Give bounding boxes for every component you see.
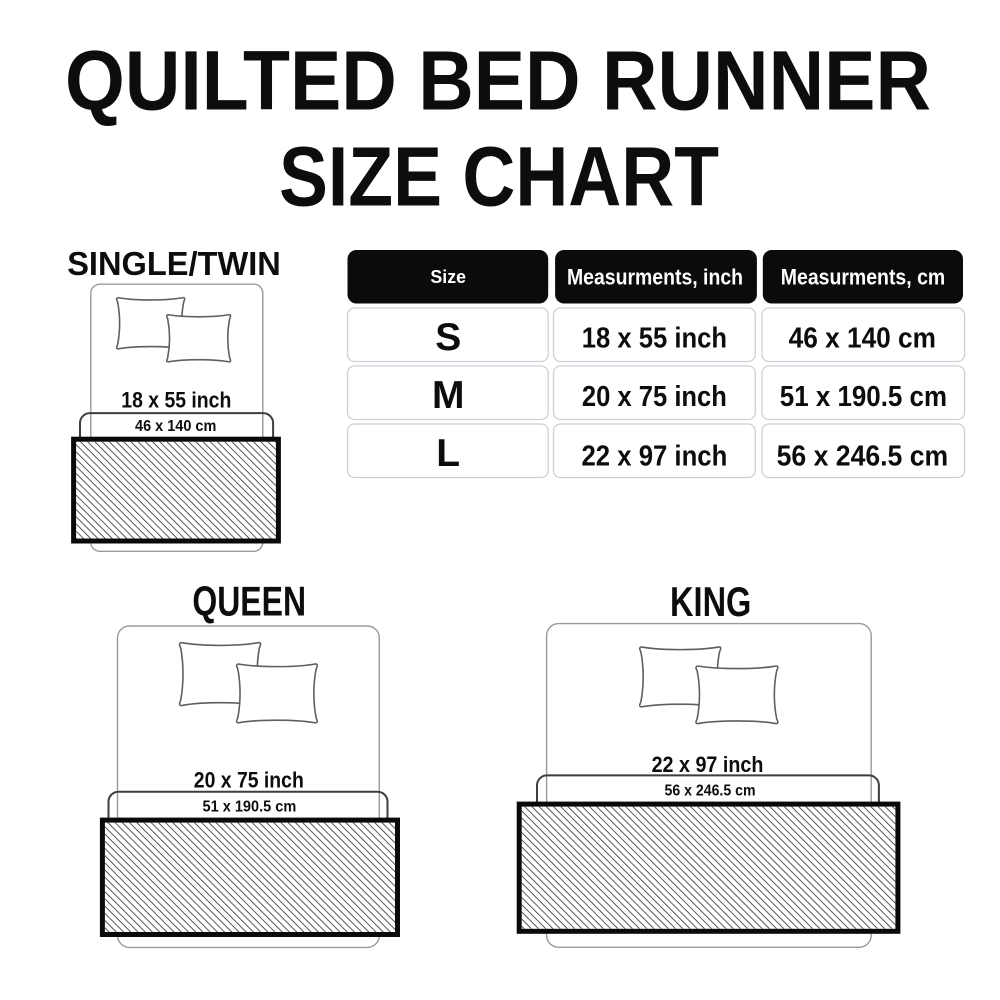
svg-text:SINGLE/TWIN: SINGLE/TWIN [67,245,281,282]
svg-text:20 x 75 inch: 20 x 75 inch [582,381,727,413]
svg-text:56 x 246.5 cm: 56 x 246.5 cm [665,783,756,800]
svg-text:Size: Size [430,267,466,287]
svg-text:51 x 190.5 cm: 51 x 190.5 cm [780,381,947,413]
svg-text:20 x 75 inch: 20 x 75 inch [194,768,304,793]
svg-text:18 x 55 inch: 18 x 55 inch [582,322,727,354]
svg-text:SIZE CHART: SIZE CHART [279,130,719,224]
svg-text:51 x 190.5 cm: 51 x 190.5 cm [203,798,297,815]
svg-text:QUEEN: QUEEN [192,577,306,624]
svg-text:56 x 246.5 cm: 56 x 246.5 cm [777,441,949,473]
svg-text:L: L [436,432,460,475]
svg-text:22 x 97 inch: 22 x 97 inch [652,752,764,777]
svg-text:Measurments, cm: Measurments, cm [781,265,945,290]
svg-text:KING: KING [670,578,751,625]
svg-text:Measurments, inch: Measurments, inch [567,265,743,290]
svg-text:M: M [432,374,465,417]
svg-text:46 x 140 cm: 46 x 140 cm [789,322,936,354]
svg-text:46 x 140 cm: 46 x 140 cm [135,418,216,435]
svg-text:S: S [435,316,461,359]
svg-text:22 x 97 inch: 22 x 97 inch [582,441,728,473]
svg-text:QUILTED BED RUNNER: QUILTED BED RUNNER [65,34,931,128]
svg-text:18 x 55 inch: 18 x 55 inch [121,388,231,413]
